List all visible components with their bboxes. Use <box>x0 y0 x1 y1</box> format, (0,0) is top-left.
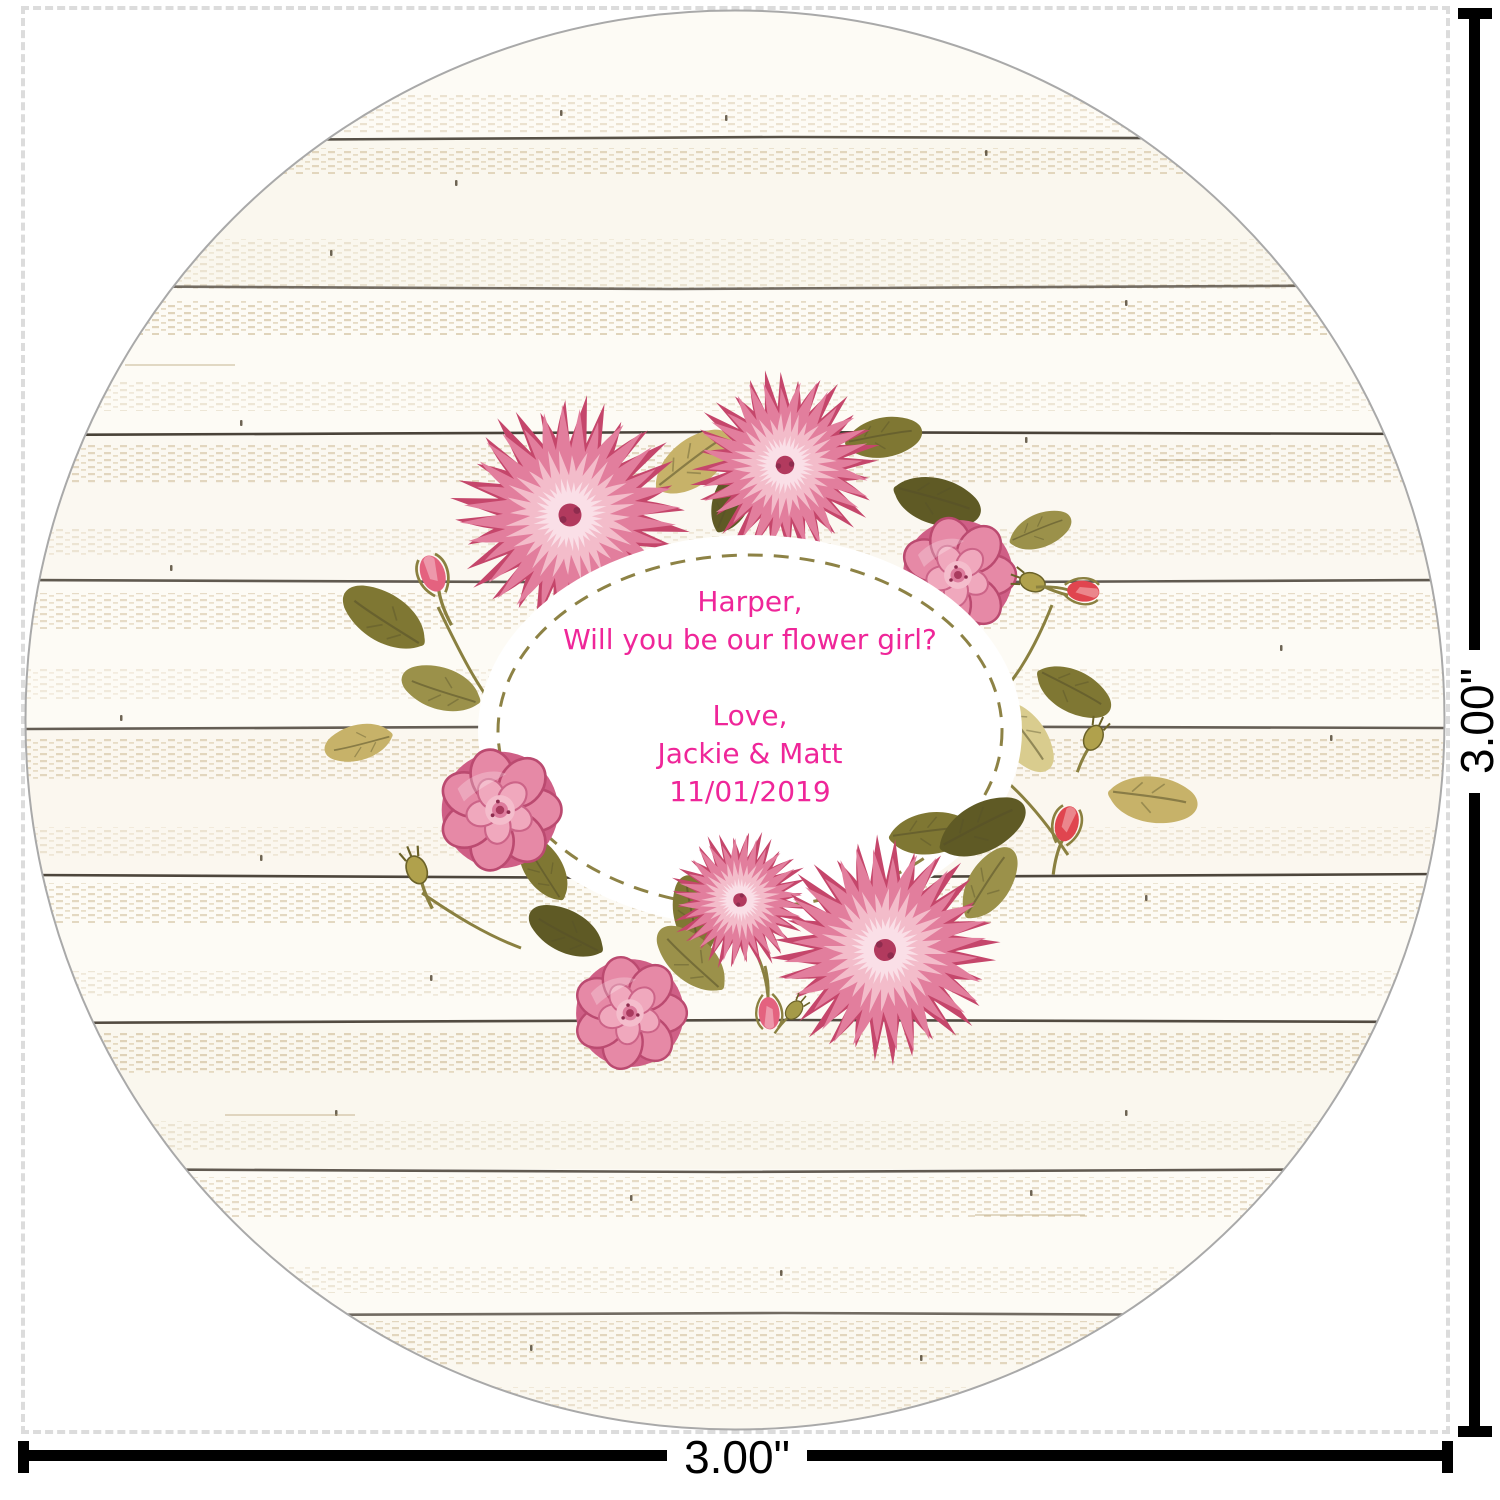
width-dimension-label: 3.00" <box>657 1430 817 1484</box>
label-text-block: Harper, Will you be our flower girl? Lov… <box>470 583 1030 811</box>
label-line-5: Jackie & Matt <box>470 735 1030 773</box>
height-dimension-cap-bottom <box>1458 1426 1492 1437</box>
width-dimension-line-left <box>22 1450 667 1461</box>
label-line-1: Harper, <box>470 583 1030 621</box>
width-dimension-line-right <box>807 1450 1448 1461</box>
width-dimension-cap-right <box>1442 1441 1453 1473</box>
label-line-3 <box>470 659 1030 697</box>
label-line-2: Will you be our flower girl? <box>470 621 1030 659</box>
height-dimension-line-bottom <box>1469 793 1480 1437</box>
height-dimension-label: 3.00" <box>1397 641 1500 801</box>
height-dimension-line-top <box>1469 8 1480 650</box>
design-preview: Harper, Will you be our flower girl? Lov… <box>0 0 1500 1500</box>
label-line-4: Love, <box>470 697 1030 735</box>
label-line-6: 11/01/2019 <box>470 773 1030 811</box>
